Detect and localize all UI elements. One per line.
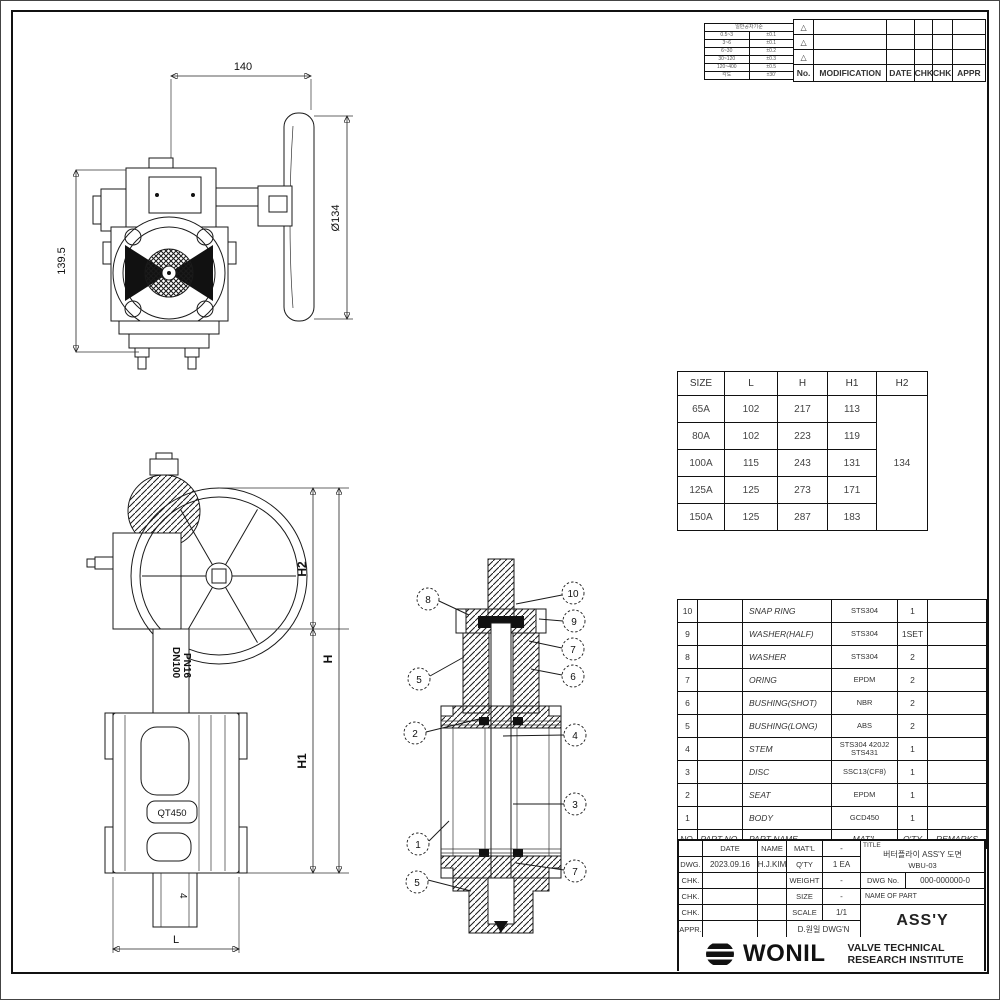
- spec-value: -: [823, 841, 861, 857]
- spec-key: MAT'L: [787, 841, 823, 857]
- balloon: 10: [562, 582, 584, 604]
- revision-mark: △: [794, 20, 814, 35]
- table-cell: STS304: [832, 600, 898, 623]
- spec-value: 1 EA: [823, 857, 861, 873]
- table-cell: 113: [828, 396, 877, 423]
- table-cell: 125A: [678, 477, 725, 504]
- spec-key: SIZE: [787, 889, 823, 905]
- table-cell: 273: [778, 477, 828, 504]
- table-cell: 9: [678, 623, 698, 646]
- balloon: 7: [564, 860, 586, 882]
- revision-mark: △: [794, 50, 814, 65]
- table-cell: WASHER: [743, 646, 832, 669]
- dim-diameter-label: Ø134: [330, 205, 342, 232]
- table-cell: 102: [725, 423, 778, 450]
- table-cell: SNAP RING: [743, 600, 832, 623]
- table-cell: 0.5~3: [705, 32, 750, 40]
- table-cell: 2: [898, 646, 928, 669]
- table-cell: BODY: [743, 807, 832, 830]
- table-cell: ±0.5: [749, 64, 794, 72]
- table-cell: [928, 715, 987, 738]
- table-cell: STS304 420J2 STS431: [832, 738, 898, 761]
- tolerance-title: 일반공차기준: [705, 24, 794, 32]
- column-header: CHK: [932, 65, 952, 82]
- dimension-header-row: SIZE L H H1 H2: [678, 372, 928, 396]
- table-row: 5BUSHING(LONG)ABS2: [678, 715, 987, 738]
- balloon: 7: [562, 638, 584, 660]
- sig-row-label: APPR.: [679, 921, 703, 937]
- table-row: △: [794, 50, 986, 65]
- table-cell: 각도: [705, 72, 750, 80]
- table-cell: 6: [678, 692, 698, 715]
- table-cell: 30~120: [705, 56, 750, 64]
- table-cell: [698, 692, 743, 715]
- table-row: 0.5~3±0.1: [705, 32, 794, 40]
- balloon-number: 3: [572, 800, 578, 811]
- table-row: 65A102217113134: [678, 396, 928, 423]
- table-cell: 131: [828, 450, 877, 477]
- table-cell: [928, 646, 987, 669]
- company-logo-text: WONIL: [743, 940, 825, 968]
- column-header: APPR: [952, 65, 985, 82]
- table-cell: 100A: [678, 450, 725, 477]
- front-view-drawing: 140 Ø134: [21, 46, 421, 386]
- dim-h-label: H: [321, 655, 335, 664]
- neck-dn-label: DN100: [170, 647, 181, 679]
- institute-line1: VALVE TECHNICAL: [847, 942, 963, 954]
- title-label: TITLE: [863, 842, 881, 849]
- table-row: 10SNAP RINGSTS3041: [678, 600, 987, 623]
- table-cell: [698, 623, 743, 646]
- spec-value: 1/1: [823, 905, 861, 921]
- table-cell: SSC13(CF8): [832, 761, 898, 784]
- balloon-number: 9: [571, 617, 577, 628]
- table-cell: ±0.1: [749, 40, 794, 48]
- table-row: 30~120±0.3: [705, 56, 794, 64]
- table-cell: 3~6: [705, 40, 750, 48]
- name-column-header: NAME: [758, 841, 787, 857]
- table-row: 각도±30': [705, 72, 794, 80]
- table-cell: [698, 784, 743, 807]
- table-row: 1BODYGCD4501: [678, 807, 987, 830]
- balloon-number: 5: [414, 878, 420, 889]
- balloon-number: 4: [572, 731, 578, 742]
- lug-mark-label: 4: [177, 893, 188, 899]
- sig-row-label: DWG.: [679, 857, 703, 873]
- sig-row-label: CHK.: [679, 905, 703, 921]
- table-row: 2SEATEPDM1: [678, 784, 987, 807]
- table-cell: 1: [898, 807, 928, 830]
- table-cell: SEAT: [743, 784, 832, 807]
- table-row: 8WASHERSTS3042: [678, 646, 987, 669]
- balloon: 8: [417, 588, 439, 610]
- dim-h1-label: H1: [295, 753, 309, 769]
- table-cell: EPDM: [832, 784, 898, 807]
- table-cell: [698, 646, 743, 669]
- spec-key: WEIGHT: [787, 873, 823, 889]
- balloon-number: 2: [412, 729, 418, 740]
- table-cell: ±0.1: [749, 32, 794, 40]
- spec-key: SCALE: [787, 905, 823, 921]
- balloon-number: 10: [567, 589, 579, 600]
- table-cell: EPDM: [832, 669, 898, 692]
- table-cell: 4: [678, 738, 698, 761]
- part-name-value: ASS'Y: [861, 905, 984, 937]
- dim-height-label: 139.5: [56, 247, 68, 275]
- table-cell: DISC: [743, 761, 832, 784]
- table-cell: 1: [898, 784, 928, 807]
- balloon: 2: [404, 722, 426, 744]
- table-cell: [698, 738, 743, 761]
- table-cell: 5: [678, 715, 698, 738]
- table-row: △: [794, 35, 986, 50]
- balloon: 5: [408, 668, 430, 690]
- table-cell: ABS: [832, 715, 898, 738]
- spec-key: Q'TY: [787, 857, 823, 873]
- drawing-sheet: 140 Ø134: [0, 0, 1000, 1000]
- table-cell: [928, 761, 987, 784]
- date-column-header: DATE: [703, 841, 758, 857]
- projection-stamp: D.원일 DWG'N: [787, 921, 861, 937]
- table-cell: 3: [678, 761, 698, 784]
- table-cell: 115: [725, 450, 778, 477]
- table-cell: 2: [678, 784, 698, 807]
- table-cell: STEM: [743, 738, 832, 761]
- table-cell: [698, 669, 743, 692]
- balloon: 9: [563, 610, 585, 632]
- table-cell: 2: [898, 692, 928, 715]
- dwg-no-value: 000-000000-0: [906, 873, 984, 889]
- column-header: H2: [877, 372, 928, 396]
- table-cell: WASHER(HALF): [743, 623, 832, 646]
- table-cell: ±0.3: [749, 56, 794, 64]
- table-row: 7ORINGEPDM2: [678, 669, 987, 692]
- revision-header-row: No. MODIFICATION DATE CHK CHK APPR: [794, 65, 986, 82]
- dim-140-label: 140: [234, 61, 252, 73]
- company-band: WONIL VALVE TECHNICAL RESEARCH INSTITUTE: [679, 937, 984, 971]
- merged-cell: 134: [877, 396, 928, 531]
- institute-name: VALVE TECHNICAL RESEARCH INSTITUTE: [847, 942, 963, 966]
- wonil-logo-icon: [703, 940, 739, 968]
- table-cell: 1SET: [898, 623, 928, 646]
- revision-block: 일반공차기준 0.5~3±0.1 3~6±0.1 6~30±0.2 30~120…: [701, 19, 986, 81]
- dwg-name: H.J.KIM: [758, 857, 787, 873]
- table-cell: 287: [778, 504, 828, 531]
- table-cell: ±0.2: [749, 48, 794, 56]
- table-row: 6~30±0.2: [705, 48, 794, 56]
- table-cell: 125: [725, 477, 778, 504]
- table-cell: ±30': [749, 72, 794, 80]
- table-row: 일반공차기준: [705, 24, 794, 32]
- table-cell: STS304: [832, 646, 898, 669]
- dim-h2-label: H2: [295, 561, 309, 577]
- table-cell: 2: [898, 669, 928, 692]
- table-cell: 6~30: [705, 48, 750, 56]
- institute-line2: RESEARCH INSTITUTE: [847, 954, 963, 966]
- table-cell: 120~400: [705, 64, 750, 72]
- balloon-number: 7: [570, 645, 576, 656]
- column-header: MODIFICATION: [814, 65, 887, 82]
- balloon-number: 7: [572, 867, 578, 878]
- table-cell: 10: [678, 600, 698, 623]
- table-cell: [698, 807, 743, 830]
- table-row: 4STEMSTS304 420J2 STS4311: [678, 738, 987, 761]
- drawing-title-line2: WBU-03: [908, 861, 936, 870]
- table-cell: [928, 669, 987, 692]
- table-cell: GCD450: [832, 807, 898, 830]
- table-cell: [698, 715, 743, 738]
- dimension-table: SIZE L H H1 H2 65A10221711313480A1022231…: [677, 371, 928, 531]
- dwg-no-label: DWG No.: [861, 873, 906, 889]
- table-cell: [928, 807, 987, 830]
- column-header: DATE: [887, 65, 914, 82]
- table-cell: NBR: [832, 692, 898, 715]
- balloon-number: 6: [570, 672, 576, 683]
- revision-table: △ △ △ No. MODIFICATION DATE CHK CHK APPR: [793, 19, 986, 82]
- table-cell: BUSHING(SHOT): [743, 692, 832, 715]
- balloon-number: 5: [416, 675, 422, 686]
- table-cell: 150A: [678, 504, 725, 531]
- table-row: 6BUSHING(SHOT)NBR2: [678, 692, 987, 715]
- table-cell: 7: [678, 669, 698, 692]
- table-cell: 125: [725, 504, 778, 531]
- table-cell: STS304: [832, 623, 898, 646]
- balloon: 5: [406, 871, 428, 893]
- balloon: 3: [564, 793, 586, 815]
- side-view-drawing: DN100 PN16 QT450 4 L H2 H H: [81, 441, 361, 966]
- table-cell: 223: [778, 423, 828, 450]
- table-cell: 183: [828, 504, 877, 531]
- column-header: H: [778, 372, 828, 396]
- table-row: 3~6±0.1: [705, 40, 794, 48]
- balloon: 1: [407, 833, 429, 855]
- column-header: H1: [828, 372, 877, 396]
- balloon: 4: [564, 724, 586, 746]
- table-cell: [698, 761, 743, 784]
- neck-pn-label: PN16: [181, 653, 192, 678]
- section-view-drawing: 8 5 2 1 5 10 9 7 6 4 3 7: [391, 549, 616, 951]
- dwg-date: 2023.09.16: [703, 857, 758, 873]
- table-cell: [698, 600, 743, 623]
- table-cell: [928, 600, 987, 623]
- balloon-number: 1: [415, 840, 421, 851]
- table-cell: [928, 692, 987, 715]
- table-cell: 1: [898, 600, 928, 623]
- drawing-title-line1: 버터플라이 ASS'Y 도면: [883, 849, 962, 860]
- spec-value: -: [823, 873, 861, 889]
- table-cell: BUSHING(LONG): [743, 715, 832, 738]
- table-row: 3DISCSSC13(CF8)1: [678, 761, 987, 784]
- table-cell: 171: [828, 477, 877, 504]
- sig-row-label: CHK.: [679, 873, 703, 889]
- table-cell: [928, 738, 987, 761]
- table-cell: 8: [678, 646, 698, 669]
- table-cell: 217: [778, 396, 828, 423]
- table-cell: [928, 623, 987, 646]
- table-cell: 80A: [678, 423, 725, 450]
- bom-table: 10SNAP RINGSTS30419WASHER(HALF)STS3041SE…: [677, 599, 987, 849]
- table-cell: 1: [678, 807, 698, 830]
- table-row: △: [794, 20, 986, 35]
- dim-l-label: L: [173, 934, 179, 946]
- table-row: 9WASHER(HALF)STS3041SET: [678, 623, 987, 646]
- table-cell: [928, 784, 987, 807]
- column-header: No.: [794, 65, 814, 82]
- balloon-number: 8: [425, 595, 431, 606]
- column-header: SIZE: [678, 372, 725, 396]
- balloon: 6: [562, 665, 584, 687]
- body-mark-label: QT450: [157, 808, 186, 819]
- table-cell: 119: [828, 423, 877, 450]
- tolerance-table: 일반공차기준 0.5~3±0.1 3~6±0.1 6~30±0.2 30~120…: [704, 23, 794, 80]
- table-cell: ORING: [743, 669, 832, 692]
- spec-value: -: [823, 889, 861, 905]
- sig-row-label: CHK.: [679, 889, 703, 905]
- table-cell: 65A: [678, 396, 725, 423]
- table-cell: 243: [778, 450, 828, 477]
- part-name-label: NAME OF PART: [861, 889, 984, 905]
- table-cell: 1: [898, 761, 928, 784]
- table-row: 120~400±0.5: [705, 64, 794, 72]
- column-header: L: [725, 372, 778, 396]
- title-block: DATE NAME DWG. 2023.09.16 H.J.KIM CHK. C…: [677, 839, 986, 971]
- revision-mark: △: [794, 35, 814, 50]
- column-header: CHK: [914, 65, 932, 82]
- table-cell: 102: [725, 396, 778, 423]
- table-cell: 1: [898, 738, 928, 761]
- table-cell: 2: [898, 715, 928, 738]
